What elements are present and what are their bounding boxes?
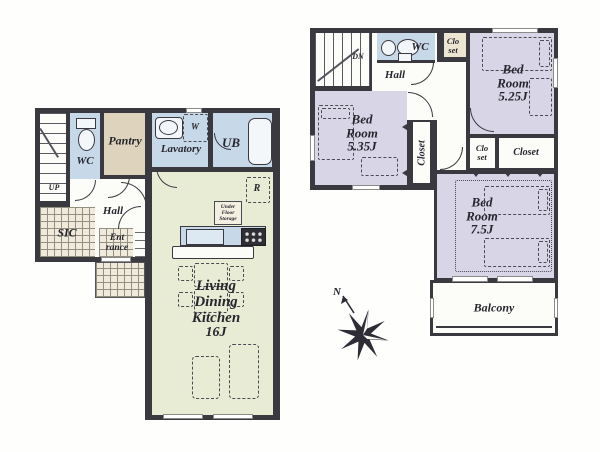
- lavatory-sink-basin: [159, 120, 178, 135]
- toilet-tank-1f: [76, 118, 96, 129]
- window-balcony-door: [452, 276, 488, 282]
- sofa: [192, 356, 220, 399]
- desk-535: [361, 157, 398, 176]
- window-ldk-south: [213, 414, 253, 419]
- window-balcony-door: [497, 276, 533, 282]
- closet-small-line2: set: [476, 153, 488, 162]
- bedroom-525-line1: Bed: [497, 63, 529, 77]
- refrigerator-label: R: [254, 184, 261, 195]
- closet-wide-label: Closet: [513, 148, 539, 159]
- compass-star-icon: N: [318, 283, 408, 373]
- pantry-label: Pantry: [108, 135, 141, 148]
- compass-north-text: N: [332, 286, 342, 298]
- ldk-label: Living Dining Kitchen 16J: [192, 279, 240, 341]
- window-ldk-south: [163, 414, 203, 419]
- bedroom-535-line2: Room: [346, 126, 378, 140]
- window-bed535-south: [352, 185, 380, 190]
- bedroom-535-line3: 5.35J: [346, 140, 378, 154]
- entrance-label: Ent rance: [106, 234, 128, 254]
- dining-chair: [178, 292, 193, 307]
- kitchen-island: [172, 246, 254, 259]
- entrance-side-storage: [135, 228, 145, 257]
- entrance-porch: [95, 262, 145, 298]
- window-bed525-east: [553, 58, 558, 88]
- floor-plan-canvas: W R Under Floor Storage: [0, 0, 600, 452]
- window-balcony-side: [430, 298, 434, 318]
- closet-door-mark: [402, 168, 410, 178]
- toilet-bowl-1f: [78, 129, 95, 151]
- sofa: [229, 344, 259, 399]
- hall-1f-label: Hall: [103, 206, 123, 218]
- entrance-line2: rance: [106, 244, 128, 254]
- wc-2f-label: WC: [411, 42, 428, 54]
- folding-door-mark: [470, 169, 482, 177]
- bedroom-525-line2: Room: [497, 76, 529, 90]
- ldk-line2: Dining: [192, 295, 240, 311]
- bedroom-535-label: Bed Room 5.35J: [346, 113, 378, 154]
- bedroom-525-label: Bed Room 5.25J: [497, 63, 529, 104]
- ldk-line3: Kitchen: [192, 311, 240, 327]
- closet-door-mark: [402, 122, 410, 132]
- closet-top-label: Clo set: [447, 37, 459, 55]
- kitchen-stove: [241, 228, 266, 246]
- window-bed525-north: [492, 28, 538, 33]
- closet-side-label: Closet: [416, 140, 427, 166]
- bedroom-525-line3: 5.25J: [497, 90, 529, 104]
- bedroom-75-label: Bed Room 7.5J: [466, 196, 498, 237]
- lavatory-label: Lavatory: [161, 144, 201, 156]
- entrance-door-opening: [101, 257, 131, 262]
- washing-machine-label: W: [191, 122, 199, 131]
- ldk-line1: Living: [192, 279, 240, 295]
- bedroom-75-line2: Room: [466, 209, 498, 223]
- kitchen-sink: [186, 229, 224, 245]
- window-bed535-west: [310, 135, 315, 161]
- ldk-line4: 16J: [192, 326, 240, 341]
- compass-rose: N: [318, 283, 408, 373]
- folding-door-mark: [534, 169, 546, 177]
- bedroom-535-line1: Bed: [346, 113, 378, 127]
- dining-chair: [178, 266, 193, 281]
- folding-door-mark: [502, 169, 514, 177]
- hall-2f-label: Hall: [385, 70, 405, 82]
- window-lavatory-north: [186, 108, 202, 113]
- wc2-sink: [381, 40, 396, 56]
- bed-525-pillow: [539, 40, 550, 67]
- bedroom-75-line3: 7.5J: [466, 223, 498, 237]
- closet-small-label: Clo set: [476, 144, 488, 162]
- stairs-down-label: DN: [352, 53, 364, 61]
- ufs-line3: Storage: [219, 216, 236, 222]
- toilet-tank-2f: [398, 53, 412, 62]
- bathtub: [248, 118, 272, 165]
- closet-side-label-wrap: Closet: [411, 120, 432, 185]
- stairs-up-label: UP: [49, 184, 60, 192]
- balcony-label: Balcony: [474, 302, 515, 315]
- sic-label: SIC: [57, 227, 76, 240]
- wc-label: WC: [76, 156, 93, 168]
- under-floor-storage-box: Under Floor Storage: [214, 201, 242, 225]
- window-balcony-side: [554, 298, 558, 318]
- ub-label: UB: [222, 136, 240, 150]
- desk-525: [529, 78, 552, 116]
- balcony-rail-line: [436, 326, 552, 328]
- closet-top-line2: set: [447, 46, 459, 55]
- bedroom-75-line1: Bed: [466, 196, 498, 210]
